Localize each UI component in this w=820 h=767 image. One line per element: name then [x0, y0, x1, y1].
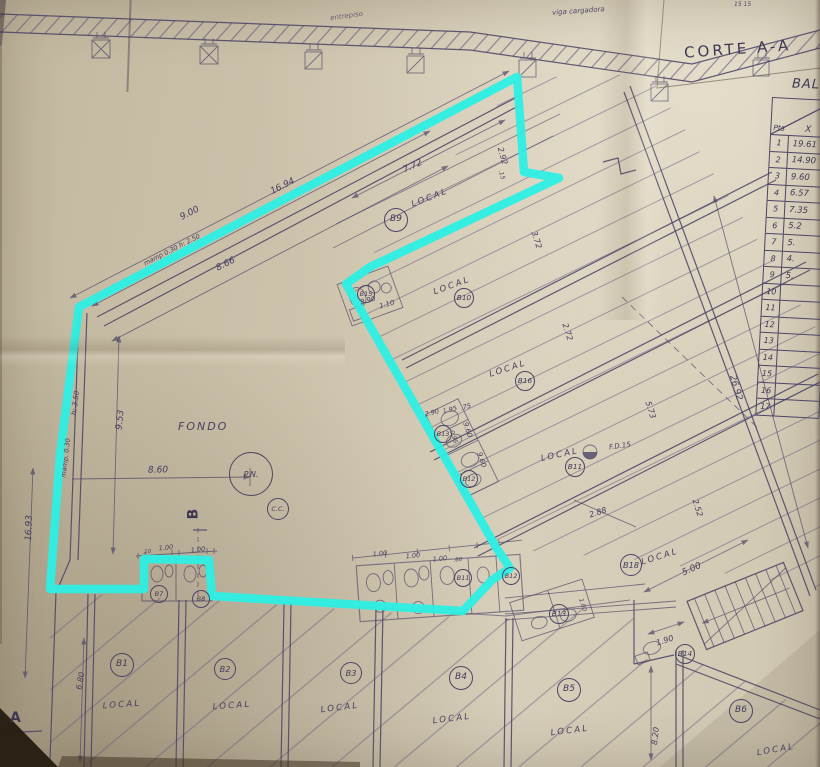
table-cell-pt: 8 [764, 250, 783, 267]
cc-label: C.C. [271, 505, 284, 513]
table-header: Pts X [770, 97, 820, 138]
plan-drawing [0, 0, 820, 767]
table-cell-pt: 12 [761, 316, 780, 333]
table-title: BAL [792, 77, 820, 93]
table-cell-pt: 2 [769, 151, 788, 168]
table-cell-pt: 7 [765, 234, 784, 251]
area-label-fondo: FONDO [178, 420, 228, 433]
table-row: 17 [756, 399, 819, 419]
paper-edge-left [0, 44, 2, 644]
table-cell-pt: 1 [770, 135, 789, 152]
table-cell-x [774, 400, 819, 419]
table-cell-pt: 5 [767, 201, 786, 218]
table-cell-pt: 6 [766, 217, 785, 234]
section-marker-b: B [185, 509, 201, 520]
table-cell-pt: 13 [760, 333, 779, 350]
table-cell-pt: 15 [758, 366, 777, 383]
table-cell-pt: 14 [759, 349, 778, 366]
pn-label: P.N. [244, 470, 259, 479]
corner-note: 15 15 [734, 1, 751, 8]
table-cell-pt: 3 [768, 168, 787, 185]
table-cell-pt: 9 [763, 267, 782, 284]
section-marker-a: A [10, 710, 21, 726]
diagonal-locals-hatch [346, 74, 820, 588]
paper-crease-horizontal [0, 336, 345, 366]
table-cell-pt: 16 [757, 382, 776, 399]
pn-benchmark-circle: P.N. [229, 452, 273, 496]
table-header-x: X [805, 125, 812, 135]
blueprint-photo: CORTE A-A entrepiso viga cargadora 15 15… [0, 0, 820, 767]
table-cell-pt: 4 [768, 184, 787, 201]
table-cell-pt: 17 [756, 399, 775, 416]
table-header-pts: Pts [773, 123, 785, 133]
paper-crease-vertical [598, 0, 668, 320]
cc-circle: C.C. [267, 498, 289, 520]
table-cell-pt: 10 [762, 283, 781, 300]
table-cell-pt: 11 [762, 300, 781, 317]
